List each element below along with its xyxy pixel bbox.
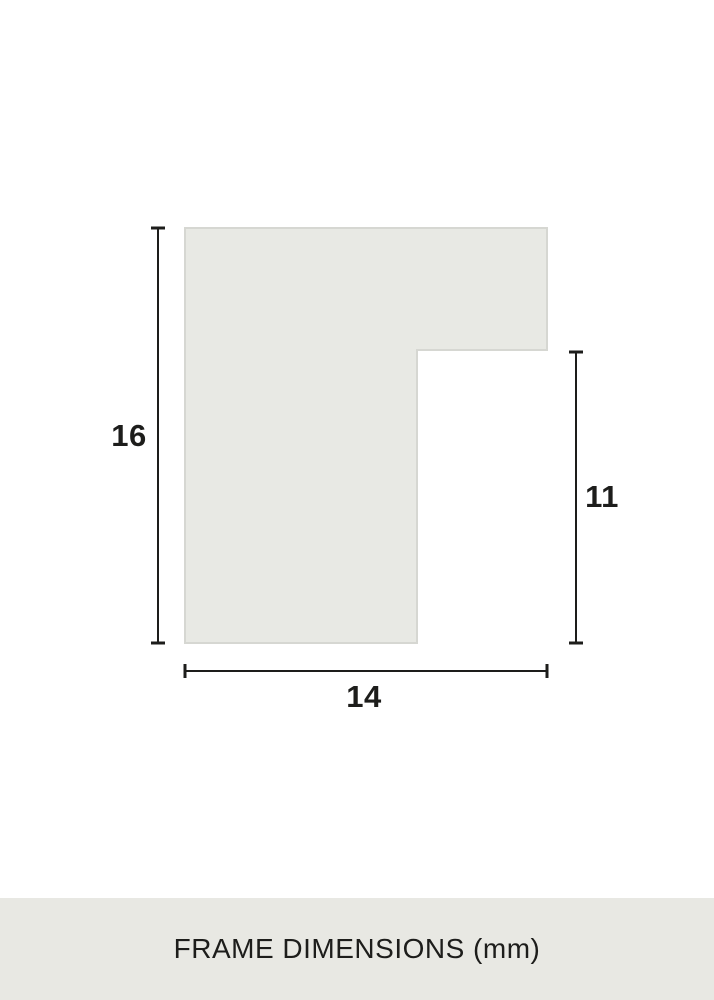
frame-dimensions-page: 16 11 14 FRAME DIMENSIONS (mm) [0,0,714,1000]
dimension-line-width [185,664,547,678]
dimension-line-inner-height [569,352,583,643]
frame-profile-diagram [0,0,714,898]
caption-bar: FRAME DIMENSIONS (mm) [0,898,714,1000]
dimension-value-height: 16 [111,418,146,454]
diagram-area: 16 11 14 [0,0,714,898]
dimension-value-width: 14 [346,679,381,715]
caption-text: FRAME DIMENSIONS (mm) [174,933,541,965]
dimension-value-inner-height: 11 [585,479,619,515]
dimension-line-height [151,228,165,643]
frame-profile-shape [185,228,547,643]
